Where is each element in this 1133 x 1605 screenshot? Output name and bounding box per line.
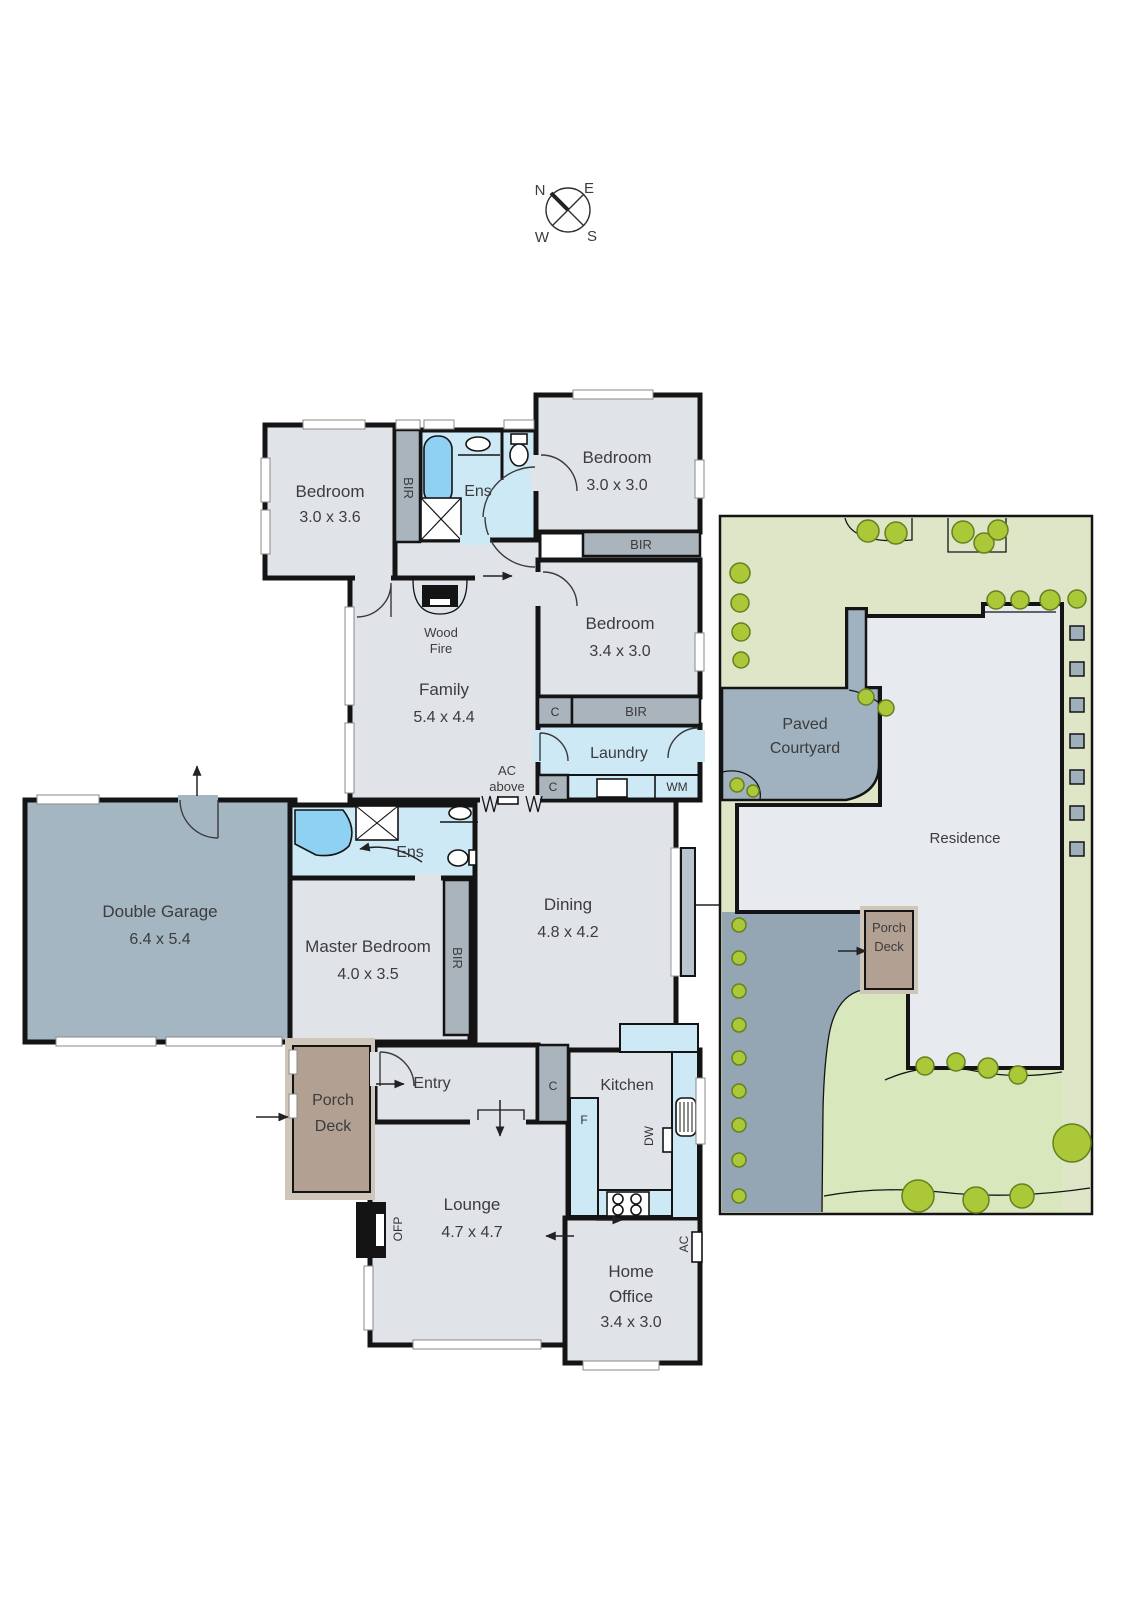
site-plan: Paved Courtyard Residence Porch Deck <box>720 516 1092 1214</box>
cupboard-entry-label: C <box>549 1079 558 1093</box>
wood-fire-label-1: Wood <box>424 625 458 640</box>
ac-office-label: AC <box>677 1235 691 1252</box>
site-porch-label-1: Porch <box>872 920 906 935</box>
dining-dims: 4.8 x 4.2 <box>537 924 598 941</box>
floor-plan: Bedroom 3.0 x 3.6 BIR Ens Bedroom 3.0 x … <box>25 390 732 1370</box>
ofp-label: OFP <box>391 1217 405 1242</box>
bedroom-1-dims: 3.0 x 3.6 <box>299 509 360 526</box>
driveway-shrubs <box>732 918 746 1203</box>
bedroom-2-dims: 3.0 x 3.0 <box>586 477 647 494</box>
wm-label: WM <box>666 780 687 794</box>
office-dims: 3.4 x 3.0 <box>600 1314 661 1331</box>
toilet-ensuite-1 <box>510 444 528 466</box>
lounge-dims: 4.7 x 4.7 <box>441 1224 502 1241</box>
compass-w-label: W <box>535 229 550 246</box>
ensuite-1-label: Ens <box>464 483 492 500</box>
laundry-trough <box>597 779 627 797</box>
basin-ensuite-1 <box>466 437 490 451</box>
laundry-label: Laundry <box>590 745 648 762</box>
ac-above-label-1: AC <box>498 763 516 778</box>
sliding-door-glass <box>671 848 680 976</box>
kitchen-sink <box>676 1098 696 1136</box>
wood-fire-label-2: Fire <box>430 641 452 656</box>
floorplan-page: N E W S <box>0 0 1133 1600</box>
bedroom-3-label: Bedroom <box>586 614 655 633</box>
kitchen-bench-top <box>620 1024 698 1052</box>
opening-family-hall <box>475 573 533 583</box>
ac-above-label-2: above <box>489 779 524 794</box>
porch-label-2: Deck <box>315 1118 352 1135</box>
room-bedroom-1 <box>265 425 395 578</box>
compass-north-pointer <box>551 193 568 210</box>
office-label-1: Home <box>608 1262 653 1281</box>
bir-2-label: BIR <box>630 537 652 552</box>
fridge-label: F <box>580 1113 587 1127</box>
lounge-label: Lounge <box>444 1195 501 1214</box>
ac-above-unit <box>498 797 518 804</box>
family-label: Family <box>419 680 470 699</box>
bir-master-label: BIR <box>450 947 465 969</box>
bathtub <box>424 436 452 504</box>
bedroom-1-label: Bedroom <box>296 482 365 501</box>
sliding-door-panel <box>681 848 695 976</box>
floorplan-drawing: N E W S <box>0 0 1133 1600</box>
dining-label: Dining <box>544 895 592 914</box>
site-porch-label-2: Deck <box>874 939 904 954</box>
family-dims: 5.4 x 4.4 <box>413 709 474 726</box>
corner-spa <box>295 810 352 856</box>
compass-s-label: S <box>587 228 597 245</box>
ac-unit-office <box>692 1232 702 1262</box>
bedroom-2-label: Bedroom <box>583 448 652 467</box>
porch-label-1: Porch <box>312 1092 354 1109</box>
cupboard-laundry-label: C <box>549 780 558 794</box>
garage-dims: 6.4 x 5.4 <box>129 931 190 948</box>
toilet-cistern <box>511 434 527 444</box>
master-bedroom-label: Master Bedroom <box>305 937 431 956</box>
compass-n-label: N <box>535 182 546 199</box>
office-label-2: Office <box>609 1287 653 1306</box>
room-double-garage <box>25 800 295 1042</box>
compass-rose: N E W S <box>535 180 597 246</box>
ensuite-master-label: Ens <box>396 844 424 861</box>
master-bedroom-dims: 4.0 x 3.5 <box>337 966 398 983</box>
residence-label: Residence <box>930 830 1001 847</box>
courtyard-label-1: Paved <box>782 716 827 733</box>
basin-master <box>449 807 471 820</box>
dw-label: DW <box>642 1125 656 1146</box>
entry-label: Entry <box>413 1075 450 1092</box>
compass-e-label: E <box>584 180 594 197</box>
bir-1-label: BIR <box>401 477 416 499</box>
dishwasher <box>663 1128 672 1152</box>
toilet-master <box>448 850 468 866</box>
garage-label: Double Garage <box>102 902 217 921</box>
courtyard-label-2: Courtyard <box>770 740 840 757</box>
cupboard-1-label: C <box>551 705 560 719</box>
kitchen-label: Kitchen <box>600 1077 653 1094</box>
bir-3-label: BIR <box>625 704 647 719</box>
bedroom-3-dims: 3.4 x 3.0 <box>589 643 650 660</box>
